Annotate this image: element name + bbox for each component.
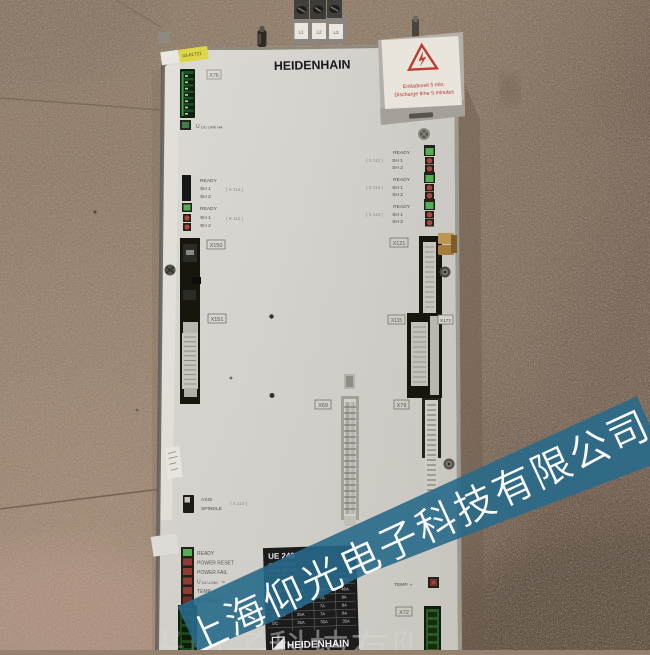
svg-text:( X 112 ): ( X 112 ) xyxy=(226,216,244,221)
svg-text:7A: 7A xyxy=(320,603,325,608)
svg-text:7A: 7A xyxy=(320,611,325,616)
svg-text:SH 1: SH 1 xyxy=(392,212,403,218)
svg-text:READY: READY xyxy=(393,150,411,156)
svg-text:X69: X69 xyxy=(318,403,328,409)
svg-text:SH 2: SH 2 xyxy=(392,192,403,198)
svg-text:DC-LINK: DC-LINK xyxy=(202,580,218,585)
svg-text:( X 114 ): ( X 114 ) xyxy=(226,187,244,192)
svg-text:( X 113 ): ( X 113 ) xyxy=(366,212,384,217)
svg-text:L1: L1 xyxy=(298,30,304,35)
svg-text:DC: DC xyxy=(272,621,278,626)
svg-text:X150: X150 xyxy=(210,243,223,249)
svg-text:READY: READY xyxy=(393,204,411,210)
svg-text:X121: X121 xyxy=(393,241,406,247)
svg-text:READY: READY xyxy=(393,177,411,183)
svg-text:HEIDENHAIN: HEIDENHAIN xyxy=(274,57,351,73)
svg-text:( X 110 ): ( X 110 ) xyxy=(230,501,248,506)
svg-text:TEMP. »: TEMP. » xyxy=(394,582,413,588)
svg-text:SH 2: SH 2 xyxy=(392,219,403,225)
svg-text:DC-LINK HA: DC-LINK HA xyxy=(201,126,223,130)
svg-text:X79: X79 xyxy=(397,403,407,409)
svg-text:X172: X172 xyxy=(440,318,452,324)
svg-text:READY: READY xyxy=(200,178,218,184)
svg-text:SPINDLE: SPINDLE xyxy=(201,506,223,512)
svg-text:U: U xyxy=(196,124,200,130)
svg-text:25A: 25A xyxy=(297,612,305,617)
svg-text:( X 111 ): ( X 111 ) xyxy=(366,158,383,163)
svg-text:25A: 25A xyxy=(297,620,305,625)
svg-text:SH 1: SH 1 xyxy=(392,185,403,191)
svg-text:»: » xyxy=(222,580,225,586)
svg-text:U: U xyxy=(197,580,201,586)
svg-text:SH 1: SH 1 xyxy=(392,158,403,164)
svg-text:READY: READY xyxy=(200,206,218,212)
svg-text:X72: X72 xyxy=(399,610,409,616)
svg-text:X151: X151 xyxy=(211,317,224,323)
svg-text:SH 2: SH 2 xyxy=(392,165,403,171)
svg-text:35A: 35A xyxy=(342,618,350,623)
svg-text:( X 110 ): ( X 110 ) xyxy=(366,185,384,190)
svg-text:L3: L3 xyxy=(333,30,339,35)
svg-text:SH 1: SH 1 xyxy=(200,186,211,192)
svg-text:POWER FAIL: POWER FAIL xyxy=(197,570,228,576)
svg-text:L2: L2 xyxy=(316,30,322,35)
svg-text:35A: 35A xyxy=(320,619,328,624)
svg-text:X76: X76 xyxy=(209,73,218,79)
svg-text:AXIS: AXIS xyxy=(201,497,213,503)
svg-text:SH 1: SH 1 xyxy=(200,215,211,221)
svg-text:SH 2: SH 2 xyxy=(200,223,211,229)
svg-text:SH 2: SH 2 xyxy=(200,194,211,200)
svg-text:8A: 8A xyxy=(341,594,346,599)
svg-text:8A: 8A xyxy=(342,602,347,607)
svg-text:POWER RESET: POWER RESET xyxy=(197,561,234,567)
svg-text:READY: READY xyxy=(197,551,215,557)
svg-text:X115: X115 xyxy=(391,318,403,324)
svg-text:8A: 8A xyxy=(342,610,347,615)
